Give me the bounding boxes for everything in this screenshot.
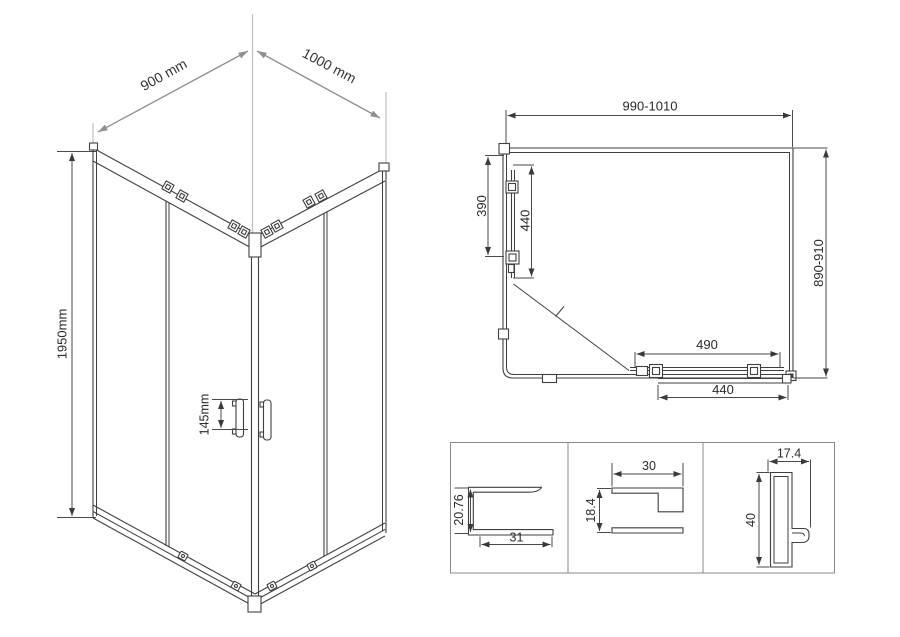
profile3-height-label: 40 xyxy=(744,513,758,527)
plan-outer-wall xyxy=(503,148,793,378)
depth-label: 1000 mm xyxy=(300,45,359,87)
wall-bracket xyxy=(543,375,557,383)
corner-post xyxy=(248,233,261,612)
corner-cap xyxy=(90,143,98,150)
side-fixed-panel-dimension: 390 xyxy=(474,156,504,257)
plan-corner-block-top xyxy=(499,144,510,155)
front-door-label: 490 xyxy=(696,337,718,352)
front-fixed-panel-label: 440 xyxy=(712,382,734,397)
shower-enclosure-drawing: 900 mm 1000 mm 1950mm xyxy=(0,0,900,637)
profile-box-3 xyxy=(703,443,835,574)
width-label: 900 mm xyxy=(138,55,190,94)
wall-bracket xyxy=(499,329,509,339)
plan-front-door xyxy=(630,365,784,378)
profile1-height-label: 20.76 xyxy=(452,494,466,525)
corner-cap xyxy=(379,163,389,171)
wall-profile-section: 30 18.4 xyxy=(584,459,683,533)
front-door-dimension: 490 xyxy=(635,337,780,367)
height-label: 1950mm xyxy=(54,309,69,360)
left-wall xyxy=(90,143,256,607)
overall-depth-label: 890-910 xyxy=(811,239,826,287)
overall-width-label: 990-1010 xyxy=(623,99,678,114)
plan-inner-wall xyxy=(507,153,790,375)
overall-width-dimension: 990-1010 xyxy=(506,99,793,148)
right-door-handle xyxy=(264,400,272,440)
bottom-rail-profile-section: 20.76 31 xyxy=(452,487,553,547)
top-guide-brackets xyxy=(162,181,327,238)
vertical-post-profile-section: 17.4 40 xyxy=(744,447,811,568)
front-fixed-panel-dimension: 440 xyxy=(658,382,788,400)
profile2-height-label: 18.4 xyxy=(584,498,598,522)
profile-sections: 20.76 31 30 18.4 17.4 xyxy=(451,443,835,574)
side-door-label: 440 xyxy=(517,210,532,232)
plan-view: 990-1010 890-910 390 440 490 xyxy=(474,99,828,401)
profile1-width-label: 31 xyxy=(510,531,524,545)
profile2-width-label: 30 xyxy=(642,459,656,473)
overall-depth-dimension: 890-910 xyxy=(793,148,828,378)
opening-diagonal xyxy=(514,284,630,371)
side-fixed-panel-label: 390 xyxy=(474,195,489,217)
left-door-handle xyxy=(236,399,244,437)
perspective-view: 900 mm 1000 mm 1950mm xyxy=(54,14,389,612)
handle-spacing-label: 145mm xyxy=(197,394,211,436)
height-dimension: 1950mm xyxy=(54,152,96,518)
technical-drawing-canvas: 900 mm 1000 mm 1950mm xyxy=(0,0,900,637)
profile3-width-label: 17.4 xyxy=(777,447,801,461)
